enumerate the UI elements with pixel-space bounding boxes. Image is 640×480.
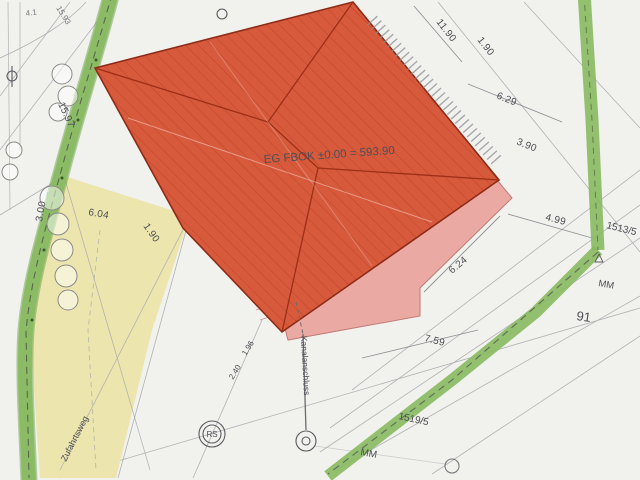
dim-4-1: 4.1 <box>25 7 38 18</box>
site-plan-drawing: EG FBOK ±0.00 = 593.90 11.90 1.90 6.29 3… <box>0 0 640 480</box>
shaft-rs-label: RS <box>206 430 217 439</box>
parcel-number-center: 91 <box>576 308 592 325</box>
